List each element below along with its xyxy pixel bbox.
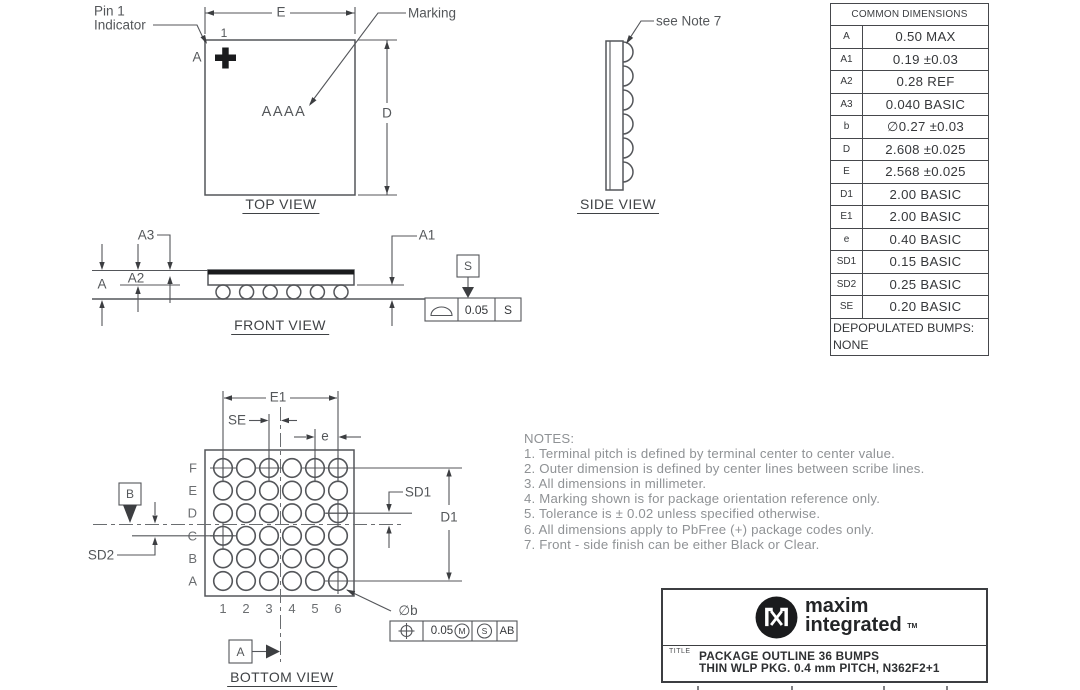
- dimension-row: D2.608 ±0.025: [831, 139, 988, 162]
- bump-E1: [214, 481, 233, 500]
- drawing-title: PACKAGE OUTLINE 36 BUMPS THIN WLP PKG. 0…: [699, 651, 940, 675]
- dimension-value: 0.040 BASIC: [863, 94, 988, 116]
- dimension-row: D12.00 BASIC: [831, 184, 988, 207]
- brand-line2: integrated TM: [805, 616, 917, 636]
- note-item: 7. Front - side finish can be either Bla…: [524, 537, 1024, 552]
- bottom-view-title: BOTTOM VIEW: [227, 669, 337, 687]
- see-note-7-label: see Note 7: [656, 14, 721, 29]
- dimension-value: 0.20 BASIC: [863, 296, 988, 318]
- brand-wordmark: maxim integrated TM: [805, 597, 917, 636]
- bump-A5: [306, 572, 325, 591]
- package-outline-drawing-sheet: FEDCBA123456: [0, 0, 1080, 690]
- depopulated-bumps-note: DEPOPULATED BUMPS: NONE: [831, 319, 988, 355]
- dim-label-a: A: [97, 277, 106, 292]
- rfs-modifier-letter: S: [482, 626, 488, 636]
- titleblock-cutoff-stubs: [698, 686, 947, 690]
- bump-A3: [260, 572, 279, 591]
- pin1-indicator-label-line1: Pin 1: [94, 4, 125, 19]
- dim-label-se: SE: [228, 413, 246, 428]
- notes-block: NOTES: 1. Terminal pitch is defined by t…: [524, 431, 1024, 552]
- bump-E4: [283, 481, 302, 500]
- note-item: 2. Outer dimension is defined by center …: [524, 461, 1024, 476]
- grid-labels: FEDCBA123456: [188, 461, 342, 617]
- dim-label-e-pitch: e: [321, 429, 329, 444]
- flatness-tolerance-value: 0.05: [465, 303, 488, 317]
- dimension-row: SE0.20 BASIC: [831, 296, 988, 319]
- top-view-title: TOP VIEW: [242, 196, 319, 214]
- dimension-name: A3: [831, 94, 863, 116]
- position-tolerance-value: 0.05: [431, 625, 453, 637]
- bump-D5: [306, 504, 325, 523]
- dim-label-d1: D1: [440, 510, 457, 525]
- datum-s-triangle: [462, 287, 474, 298]
- datum-a-letter: A: [236, 645, 244, 659]
- dim-label-ball-diameter: ∅b: [398, 603, 417, 619]
- row-label-E: E: [188, 483, 197, 498]
- dimension-row: SD20.25 BASIC: [831, 274, 988, 297]
- bump-C6: [329, 527, 348, 546]
- dim-label-a3: A3: [138, 228, 155, 243]
- depopulated-bumps-line2: NONE: [833, 337, 986, 354]
- dimension-name: b: [831, 116, 863, 138]
- row-label-D: D: [188, 506, 197, 521]
- dimension-row: SD10.15 BASIC: [831, 251, 988, 274]
- col-label-3: 3: [265, 601, 272, 616]
- bump-D4: [283, 504, 302, 523]
- maxim-logo-icon: [755, 596, 798, 639]
- dimension-row: e0.40 BASIC: [831, 229, 988, 252]
- bump-E6: [329, 481, 348, 500]
- row-label-B: B: [188, 551, 197, 566]
- bump-A4: [283, 572, 302, 591]
- dimension-value: 0.28 REF: [863, 71, 988, 93]
- dimension-row: A0.50 MAX: [831, 26, 988, 49]
- side-view-title: SIDE VIEW: [577, 196, 659, 214]
- bump-C4: [283, 527, 302, 546]
- dimension-value: 2.00 BASIC: [863, 184, 988, 206]
- datum-a-triangle: [266, 645, 280, 659]
- drawing-title-line2: THIN WLP PKG. 0.4 mm PITCH, N362F2+1: [699, 663, 940, 675]
- dim-label-a2: A2: [128, 271, 145, 286]
- flatness-datum-ref: S: [504, 303, 512, 317]
- dim-label-d: D: [382, 106, 392, 121]
- dimension-name: A2: [831, 71, 863, 93]
- side-view-drawing: [606, 21, 654, 190]
- title-field-label: TITLE: [669, 648, 691, 655]
- common-dimensions-table: COMMON DIMENSIONS A0.50 MAXA10.19 ±0.03A…: [830, 3, 989, 356]
- bump-C2: [237, 527, 256, 546]
- bump-D3: [260, 504, 279, 523]
- note-item: 6. All dimensions apply to PbFree (+) pa…: [524, 522, 1024, 537]
- dimension-value: 0.40 BASIC: [863, 229, 988, 251]
- position-datum-refs: AB: [500, 625, 515, 637]
- note-item: 3. All dimensions in millimeter.: [524, 476, 1024, 491]
- datum-b-letter: B: [126, 487, 134, 501]
- bump-E3: [260, 481, 279, 500]
- dim-label-e1: E1: [270, 390, 287, 405]
- pin1-row-letter: A: [192, 50, 201, 65]
- bump-A2: [237, 572, 256, 591]
- title-block: maxim integrated TM TITLE PACKAGE OUTLIN…: [661, 588, 988, 683]
- dimension-row: A10.19 ±0.03: [831, 49, 988, 72]
- dimension-value: 2.608 ±0.025: [863, 139, 988, 161]
- col-label-4: 4: [288, 601, 295, 616]
- datum-b-triangle: [123, 505, 137, 523]
- dimension-value: ∅0.27 ±0.03: [863, 116, 988, 138]
- dimension-row: b∅0.27 ±0.03: [831, 116, 988, 139]
- bump-F4: [283, 459, 302, 478]
- dimension-name: A: [831, 26, 863, 48]
- col-label-2: 2: [242, 601, 249, 616]
- pin1-ball-number: 1: [221, 26, 228, 40]
- dimension-value: 0.25 BASIC: [863, 274, 988, 296]
- bump-B1: [214, 549, 233, 568]
- dim-label-e: E: [276, 5, 285, 20]
- row-label-F: F: [189, 461, 197, 476]
- dimension-value: 0.50 MAX: [863, 26, 988, 48]
- dimension-name: e: [831, 229, 863, 251]
- dim-label-sd2: SD2: [88, 548, 114, 563]
- dimension-row: A20.28 REF: [831, 71, 988, 94]
- note-item: 4. Marking shown is for package orientat…: [524, 491, 1024, 506]
- trademark-symbol: TM: [907, 623, 917, 630]
- dimension-value: 2.568 ±0.025: [863, 161, 988, 183]
- dimension-name: SD2: [831, 274, 863, 296]
- col-label-5: 5: [311, 601, 318, 616]
- position-control-frame: [390, 621, 517, 641]
- marking-label: Marking: [408, 6, 456, 21]
- dimension-row: E12.00 BASIC: [831, 206, 988, 229]
- bump-F2: [237, 459, 256, 478]
- dimension-name: D: [831, 139, 863, 161]
- dim-label-sd1: SD1: [405, 485, 431, 500]
- marking-text: AAAA: [262, 104, 307, 120]
- mmc-modifier-letter: M: [458, 626, 465, 636]
- top-view-drawing: [153, 7, 406, 195]
- dim-label-a1: A1: [419, 228, 436, 243]
- table-header: COMMON DIMENSIONS: [831, 4, 988, 26]
- dimension-name: E: [831, 161, 863, 183]
- dimension-name: A1: [831, 49, 863, 71]
- bump-B3: [260, 549, 279, 568]
- col-label-6: 6: [334, 601, 341, 616]
- table-rows: A0.50 MAXA10.19 ±0.03A20.28 REFA30.040 B…: [831, 26, 988, 319]
- bump-C5: [306, 527, 325, 546]
- seating-plane-symbol: [431, 307, 452, 315]
- bump-A1: [214, 572, 233, 591]
- row-label-A: A: [188, 574, 197, 589]
- backside-coating-stripe: [208, 270, 354, 275]
- bump-D1: [214, 504, 233, 523]
- bump-E2: [237, 481, 256, 500]
- datum-s-letter: S: [464, 259, 472, 273]
- bump-D2: [237, 504, 256, 523]
- bump-B5: [306, 549, 325, 568]
- dimension-row: E2.568 ±0.025: [831, 161, 988, 184]
- notes-title: NOTES:: [524, 431, 1024, 446]
- bump-E5: [306, 481, 325, 500]
- dimension-row: A30.040 BASIC: [831, 94, 988, 117]
- pin1-indicator-mark: [215, 48, 236, 69]
- pin1-indicator-label-line2: Indicator: [94, 18, 146, 33]
- dimension-value: 2.00 BASIC: [863, 206, 988, 228]
- brand-line2-text: integrated: [805, 614, 902, 636]
- title-block-brand-row: maxim integrated TM: [663, 590, 986, 646]
- dimension-name: SE: [831, 296, 863, 318]
- title-block-title-row: TITLE PACKAGE OUTLINE 36 BUMPS THIN WLP …: [663, 646, 986, 682]
- notes-list: 1. Terminal pitch is defined by terminal…: [524, 446, 1024, 552]
- note-item: 5. Tolerance is ± 0.02 unless specified …: [524, 506, 1024, 521]
- col-label-1: 1: [219, 601, 226, 616]
- depopulated-bumps-line1: DEPOPULATED BUMPS:: [833, 320, 986, 337]
- dimension-value: 0.15 BASIC: [863, 251, 988, 273]
- front-view-drawing: [92, 235, 521, 326]
- note-item: 1. Terminal pitch is defined by terminal…: [524, 446, 1024, 461]
- dimension-value: 0.19 ±0.03: [863, 49, 988, 71]
- dimension-name: D1: [831, 184, 863, 206]
- bump-B4: [283, 549, 302, 568]
- bump-B6: [329, 549, 348, 568]
- bottom-view-drawing: FEDCBA123456: [93, 391, 517, 663]
- bump-C3: [260, 527, 279, 546]
- front-view-title: FRONT VIEW: [231, 317, 329, 335]
- position-symbol: [399, 623, 415, 639]
- bump-B2: [237, 549, 256, 568]
- dimension-name: SD1: [831, 251, 863, 273]
- dimension-name: E1: [831, 206, 863, 228]
